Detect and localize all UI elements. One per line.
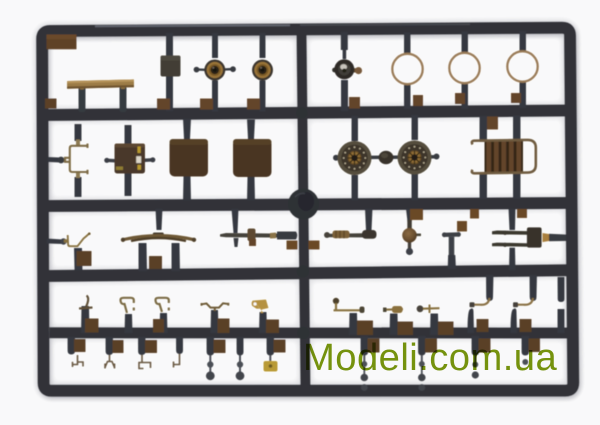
svg-text:Modeli.com.ua: Modeli.com.ua	[303, 336, 557, 379]
